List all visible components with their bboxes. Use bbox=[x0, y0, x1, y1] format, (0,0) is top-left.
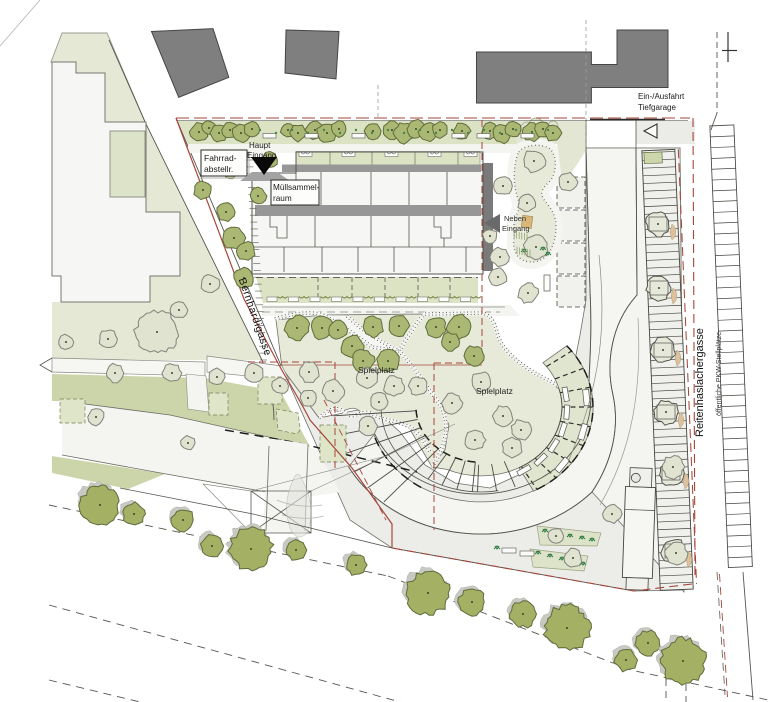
svg-text:Müllsammel-: Müllsammel- bbox=[273, 183, 320, 192]
svg-text:Fahrrad-: Fahrrad- bbox=[204, 153, 237, 163]
svg-text:Neben: Neben bbox=[504, 214, 526, 223]
svg-text:Reitenhaslachergasse: Reitenhaslachergasse bbox=[694, 328, 706, 437]
svg-text:Haupt: Haupt bbox=[249, 141, 271, 150]
svg-text:Eingang: Eingang bbox=[502, 224, 530, 233]
svg-text:raum: raum bbox=[273, 194, 292, 203]
svg-text:Ein-/Ausfahrt: Ein-/Ausfahrt bbox=[638, 92, 685, 101]
svg-text:öffentliche PKW-Stellplätze: öffentliche PKW-Stellplätze bbox=[716, 332, 723, 416]
svg-text:abstellr.: abstellr. bbox=[204, 164, 233, 174]
svg-text:Spielplatz: Spielplatz bbox=[476, 386, 513, 396]
svg-text:Tiefgarage: Tiefgarage bbox=[638, 103, 677, 112]
svg-text:Spielplatz: Spielplatz bbox=[358, 365, 395, 375]
